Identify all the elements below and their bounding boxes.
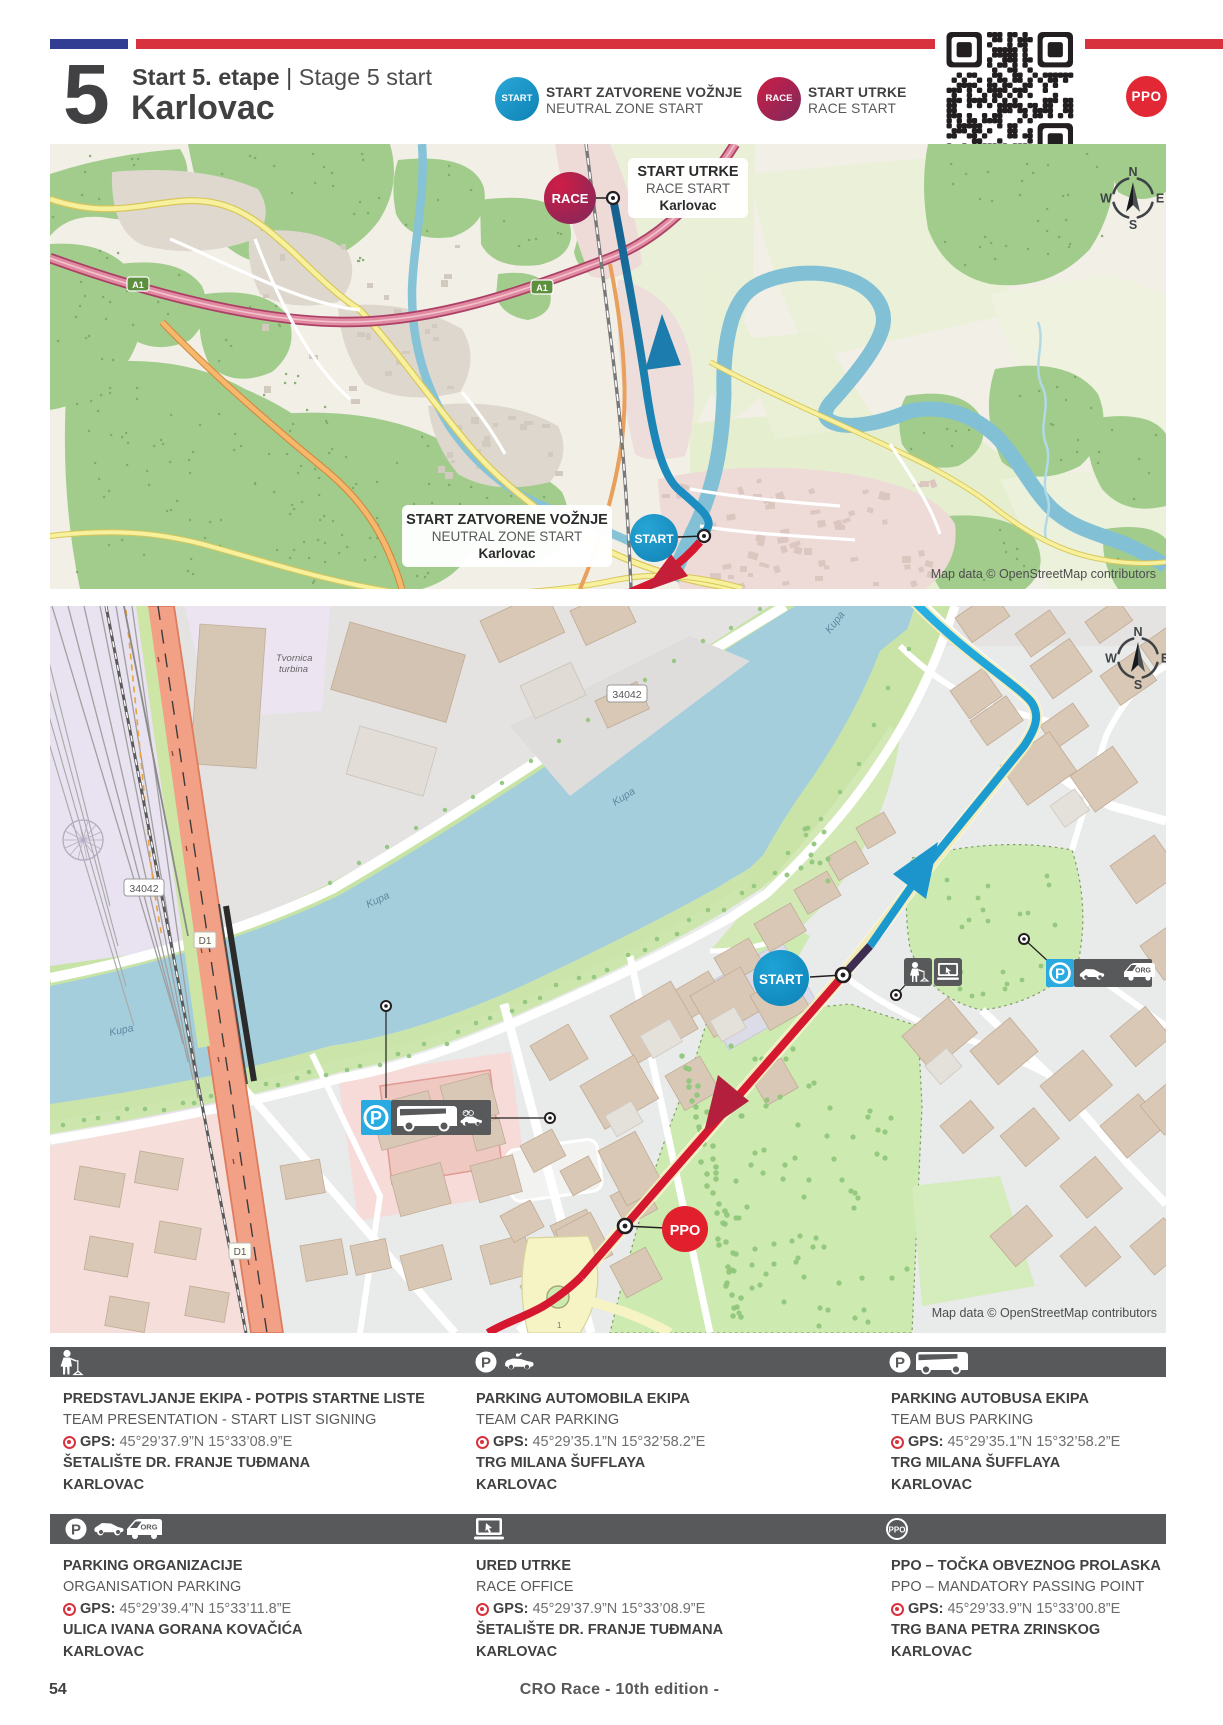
svg-text:START: START <box>759 972 804 987</box>
svg-text:Map data © OpenStreetMap contr: Map data © OpenStreetMap contributors <box>932 1306 1157 1320</box>
svg-text:W: W <box>1105 652 1117 666</box>
svg-text:N: N <box>1128 165 1137 179</box>
svg-text:E: E <box>1156 192 1164 206</box>
svg-text:S: S <box>1129 218 1137 232</box>
svg-text:D1: D1 <box>234 1247 247 1258</box>
svg-text:Karlovac: Karlovac <box>659 198 717 213</box>
svg-text:W: W <box>1100 192 1112 206</box>
svg-text:PPO: PPO <box>889 1526 906 1535</box>
svg-text:34042: 34042 <box>129 883 158 895</box>
svg-text:1: 1 <box>557 1321 562 1330</box>
svg-text:turbina: turbina <box>279 664 308 675</box>
svg-text:Map data © OpenStreetMap contr: Map data © OpenStreetMap contributors <box>931 567 1156 581</box>
svg-text:P: P <box>370 1108 382 1128</box>
svg-text:A1: A1 <box>536 283 548 293</box>
svg-text:D1: D1 <box>199 936 212 947</box>
svg-text:A1: A1 <box>132 280 144 290</box>
svg-text:Karlovac: Karlovac <box>478 546 536 561</box>
svg-text:RACE: RACE <box>552 191 589 206</box>
svg-text:START: START <box>634 532 674 546</box>
svg-text:S: S <box>1134 678 1142 692</box>
svg-text:34042: 34042 <box>612 689 641 701</box>
svg-text:E: E <box>1161 652 1166 666</box>
svg-text:P: P <box>1055 966 1065 983</box>
svg-text:ORG: ORG <box>140 1523 157 1532</box>
svg-text:RACE START: RACE START <box>646 181 730 196</box>
svg-text:N: N <box>1133 625 1142 639</box>
svg-text:P: P <box>71 1522 81 1539</box>
svg-text:ORG: ORG <box>1135 968 1152 975</box>
svg-text:P: P <box>895 1355 905 1372</box>
svg-text:START ZATVORENE VOŽNJE: START ZATVORENE VOŽNJE <box>406 510 608 528</box>
svg-text:NEUTRAL ZONE START: NEUTRAL ZONE START <box>432 529 583 544</box>
svg-text:P: P <box>481 1355 491 1372</box>
svg-text:PPO: PPO <box>670 1223 701 1239</box>
svg-text:Tvornica: Tvornica <box>276 653 312 664</box>
svg-text:START UTRKE: START UTRKE <box>637 164 739 180</box>
